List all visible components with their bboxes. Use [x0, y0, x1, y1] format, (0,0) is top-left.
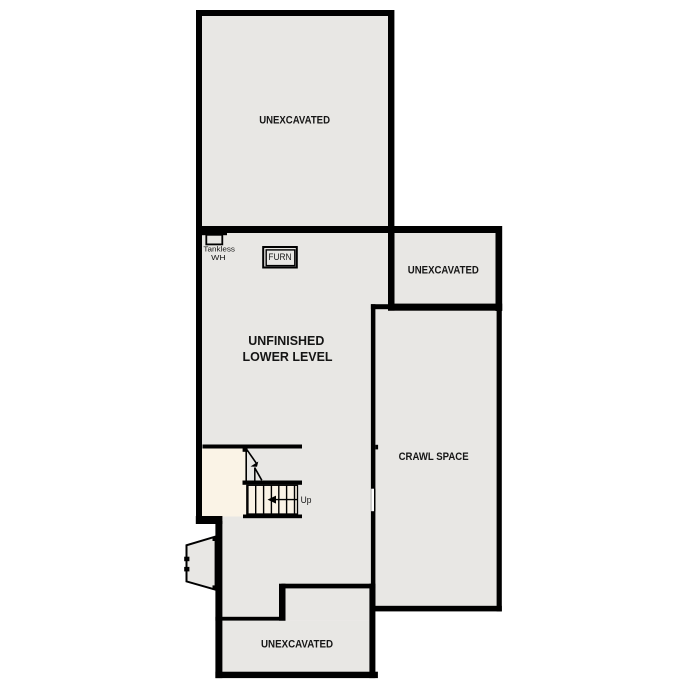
svg-text:Up: Up — [301, 495, 312, 505]
svg-text:LOWER LEVEL: LOWER LEVEL — [243, 349, 333, 364]
svg-text:FURN: FURN — [268, 251, 291, 262]
svg-text:UNFINISHED: UNFINISHED — [248, 333, 324, 348]
svg-text:WH: WH — [211, 253, 226, 262]
svg-text:UNEXCAVATED: UNEXCAVATED — [259, 115, 330, 127]
svg-text:CRAWL SPACE: CRAWL SPACE — [399, 451, 469, 463]
svg-text:UNEXCAVATED: UNEXCAVATED — [261, 639, 333, 651]
svg-text:UNEXCAVATED: UNEXCAVATED — [408, 265, 479, 277]
